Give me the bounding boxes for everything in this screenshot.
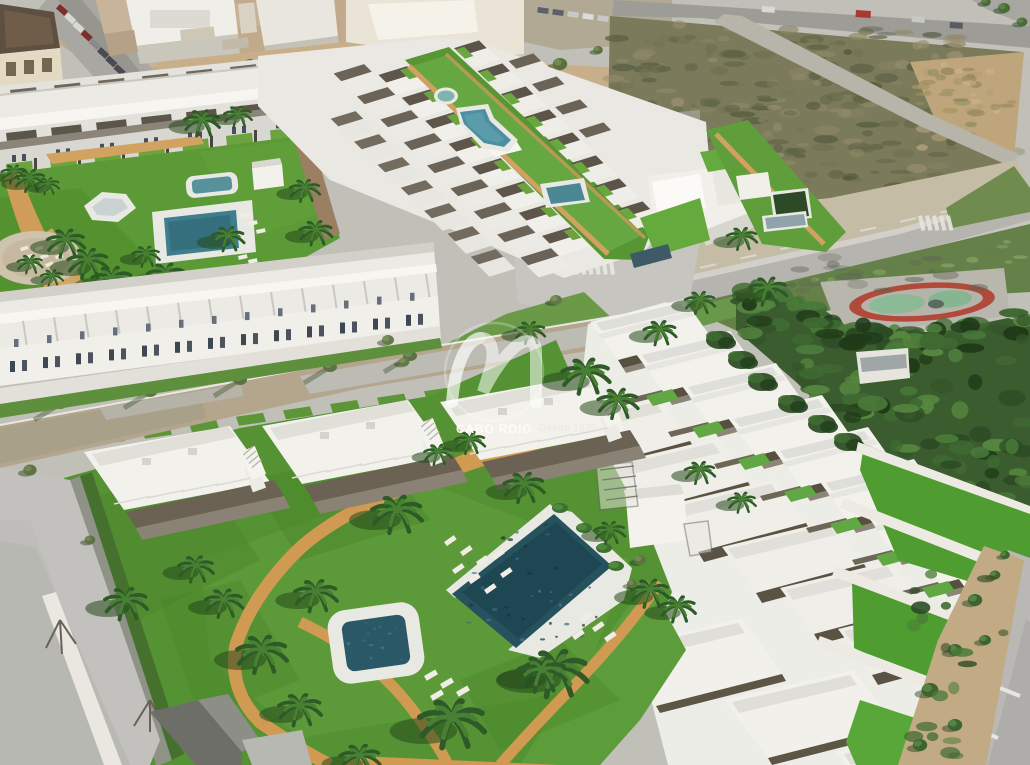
svg-text:CABO ROIG: CABO ROIG: [456, 422, 533, 436]
svg-text:Desde 1970: Desde 1970: [539, 423, 597, 434]
